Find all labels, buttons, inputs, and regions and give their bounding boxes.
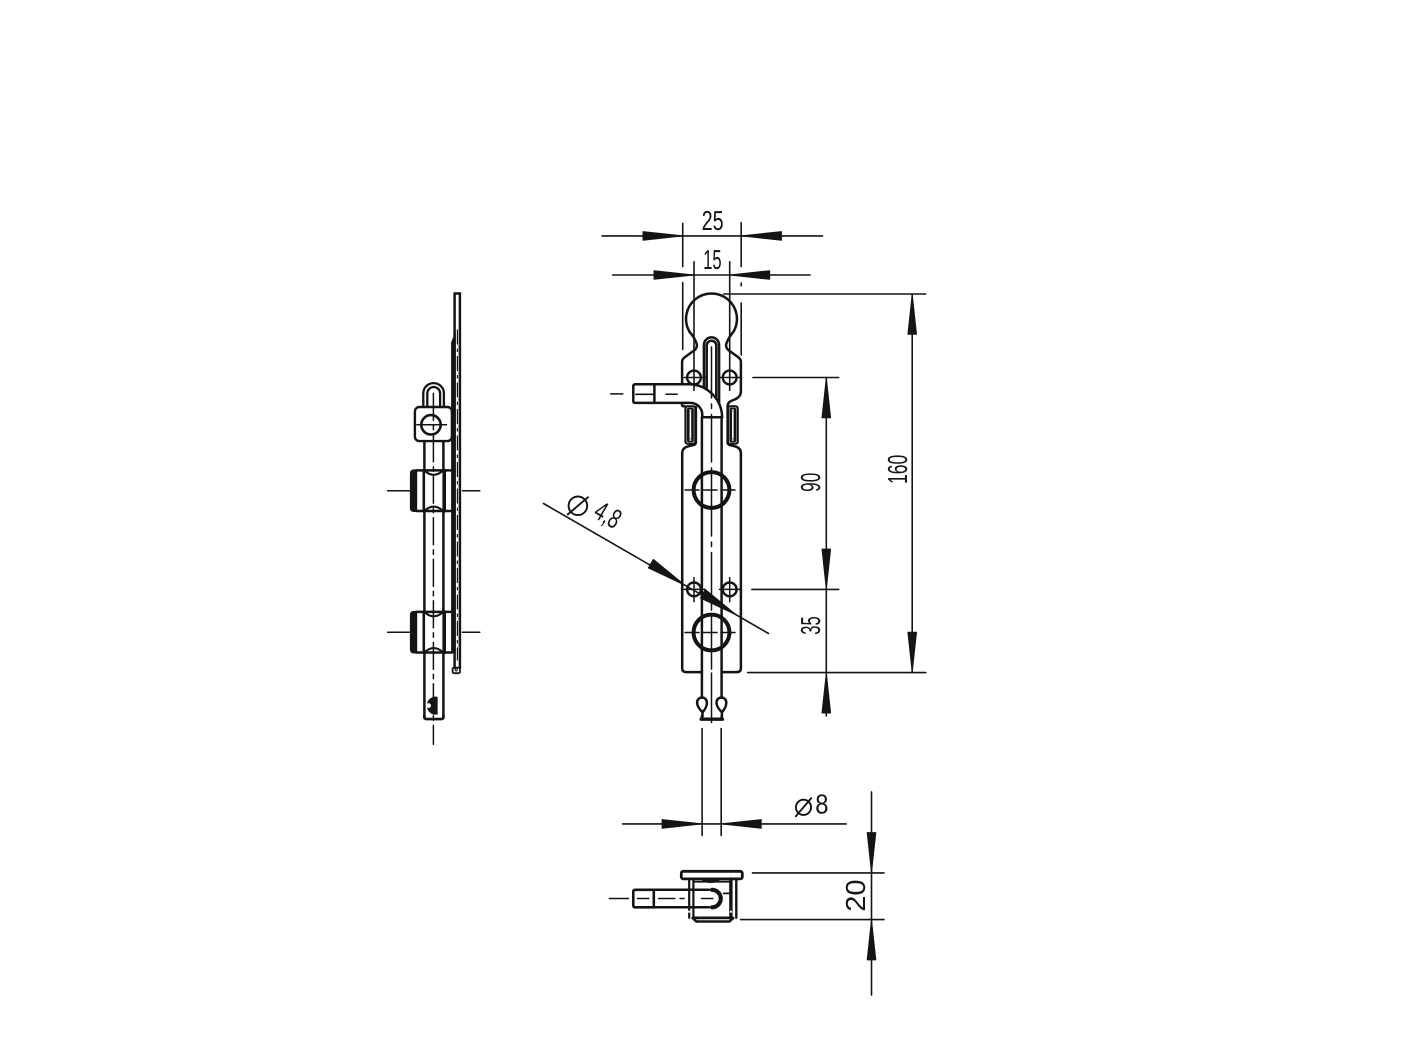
svg-text:20: 20	[840, 879, 871, 911]
svg-text:15: 15	[703, 244, 721, 275]
svg-text:25: 25	[702, 205, 724, 236]
svg-text:8: 8	[815, 788, 828, 819]
svg-text:35: 35	[795, 616, 826, 634]
svg-text:160: 160	[882, 455, 913, 484]
svg-text:90: 90	[795, 473, 826, 492]
